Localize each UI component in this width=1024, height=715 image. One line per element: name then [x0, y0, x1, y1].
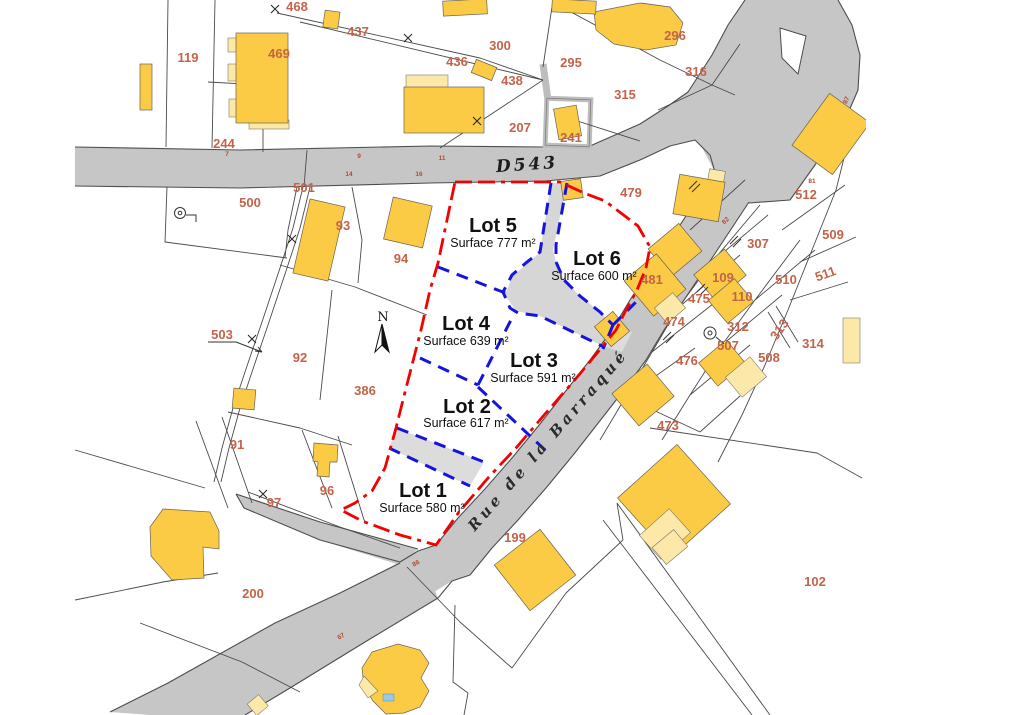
left-margin: [0, 0, 75, 715]
parcel-label-503: 503: [211, 327, 233, 342]
parcel-label-511: 511: [813, 263, 838, 284]
parcel-label-501: 501: [293, 180, 315, 195]
utility-symbol: [175, 208, 197, 223]
parcel-label-473: 473: [657, 418, 679, 433]
parcel-label-296: 296: [664, 28, 686, 43]
lot-surface-4: Surface 639 m²: [423, 334, 508, 348]
parcel-label-316: 316: [685, 64, 707, 79]
lot-surface-1: Surface 580 m²: [379, 501, 464, 515]
parcel-label-475: 475: [688, 291, 710, 306]
parcel-label-307: 307: [747, 236, 769, 251]
parcel-label-509: 509: [822, 227, 844, 242]
lot-title-1: Lot 1: [399, 480, 447, 502]
building-94: [384, 197, 433, 248]
parcel-label-92: 92: [293, 350, 307, 365]
parcel-label-200: 200: [242, 586, 264, 601]
lot-surface-3: Surface 591 m²: [490, 371, 575, 385]
map-canvas: N 46843711946943630029529631631543820724…: [0, 0, 1024, 715]
parcel-label-110: 110: [732, 289, 753, 304]
parcel-label-438: 438: [501, 73, 523, 88]
parcel-label-481: 481: [641, 272, 663, 287]
parcel-label-119: 119: [178, 50, 199, 65]
parcel-label-91: 91: [230, 437, 244, 452]
north-arrow: N: [375, 310, 389, 352]
parcel-label-102: 102: [804, 574, 826, 589]
building-blob-south: [362, 644, 429, 714]
parcel-label-469: 469: [268, 46, 290, 61]
pool: [383, 694, 394, 701]
parcel-label-468: 468: [286, 0, 308, 14]
lot1-lot2-driveway: [389, 428, 484, 486]
road-number: 16: [415, 171, 423, 178]
lane-241: [543, 64, 548, 100]
building-93: [293, 199, 345, 281]
parcel-label-109: 109: [712, 270, 734, 285]
lot-surface-6: Surface 600 m²: [551, 269, 636, 283]
parcel-label-476: 476: [676, 353, 698, 368]
parcel-label-510: 510: [775, 272, 797, 287]
parcel-label-508: 508: [758, 350, 780, 365]
lot-title-5: Lot 5: [469, 215, 517, 237]
cadastral-map: N 46843711946943630029529631631543820724…: [0, 0, 1024, 715]
parcel-label-241: 241: [560, 130, 582, 145]
parcel-label-313: 313: [767, 316, 792, 342]
road-number: 14: [345, 171, 353, 178]
parcel-label-314: 314: [802, 336, 824, 351]
parcel-label-244: 244: [213, 136, 235, 151]
parcel-label-207: 207: [509, 120, 531, 135]
parcel-label-512: 512: [795, 187, 817, 202]
parcel-label-315: 315: [614, 87, 636, 102]
lot-surface-5: Surface 777 m²: [450, 236, 535, 250]
parcel-label-507: 507: [717, 338, 739, 353]
parcel-label-97: 97: [267, 495, 281, 510]
parcel-label-479: 479: [620, 185, 642, 200]
lot-title-6: Lot 6: [573, 248, 621, 270]
parcel-label-93: 93: [336, 218, 350, 233]
parcel-label-437: 437: [347, 24, 369, 39]
parcel-label-300: 300: [489, 38, 511, 53]
parcel-label-199: 199: [504, 530, 526, 545]
building: [140, 64, 152, 110]
road-d543: [75, 92, 715, 188]
parcel-label-500: 500: [239, 195, 261, 210]
parcel-label-386: 386: [354, 383, 376, 398]
building-200: [150, 509, 219, 580]
parcel-label-312: 312: [727, 319, 749, 334]
parcel-label-94: 94: [394, 251, 409, 266]
north-label: N: [377, 310, 388, 325]
lot-title-2: Lot 2: [443, 396, 491, 418]
lot-title-3: Lot 3: [510, 350, 558, 372]
road-number: 81: [808, 178, 816, 185]
lot-surface-2: Surface 617 m²: [423, 416, 508, 430]
parcel-label-436: 436: [446, 54, 468, 69]
right-margin: [866, 0, 1024, 715]
road-number: 11: [439, 155, 446, 162]
building-479: [673, 174, 725, 221]
parcel-label-474: 474: [663, 314, 685, 329]
parcel-label-295: 295: [560, 55, 582, 70]
road-number: 7: [225, 151, 229, 158]
parcel-label-96: 96: [320, 483, 334, 498]
road-number: 9: [357, 153, 361, 160]
lot-title-4: Lot 4: [442, 313, 491, 335]
